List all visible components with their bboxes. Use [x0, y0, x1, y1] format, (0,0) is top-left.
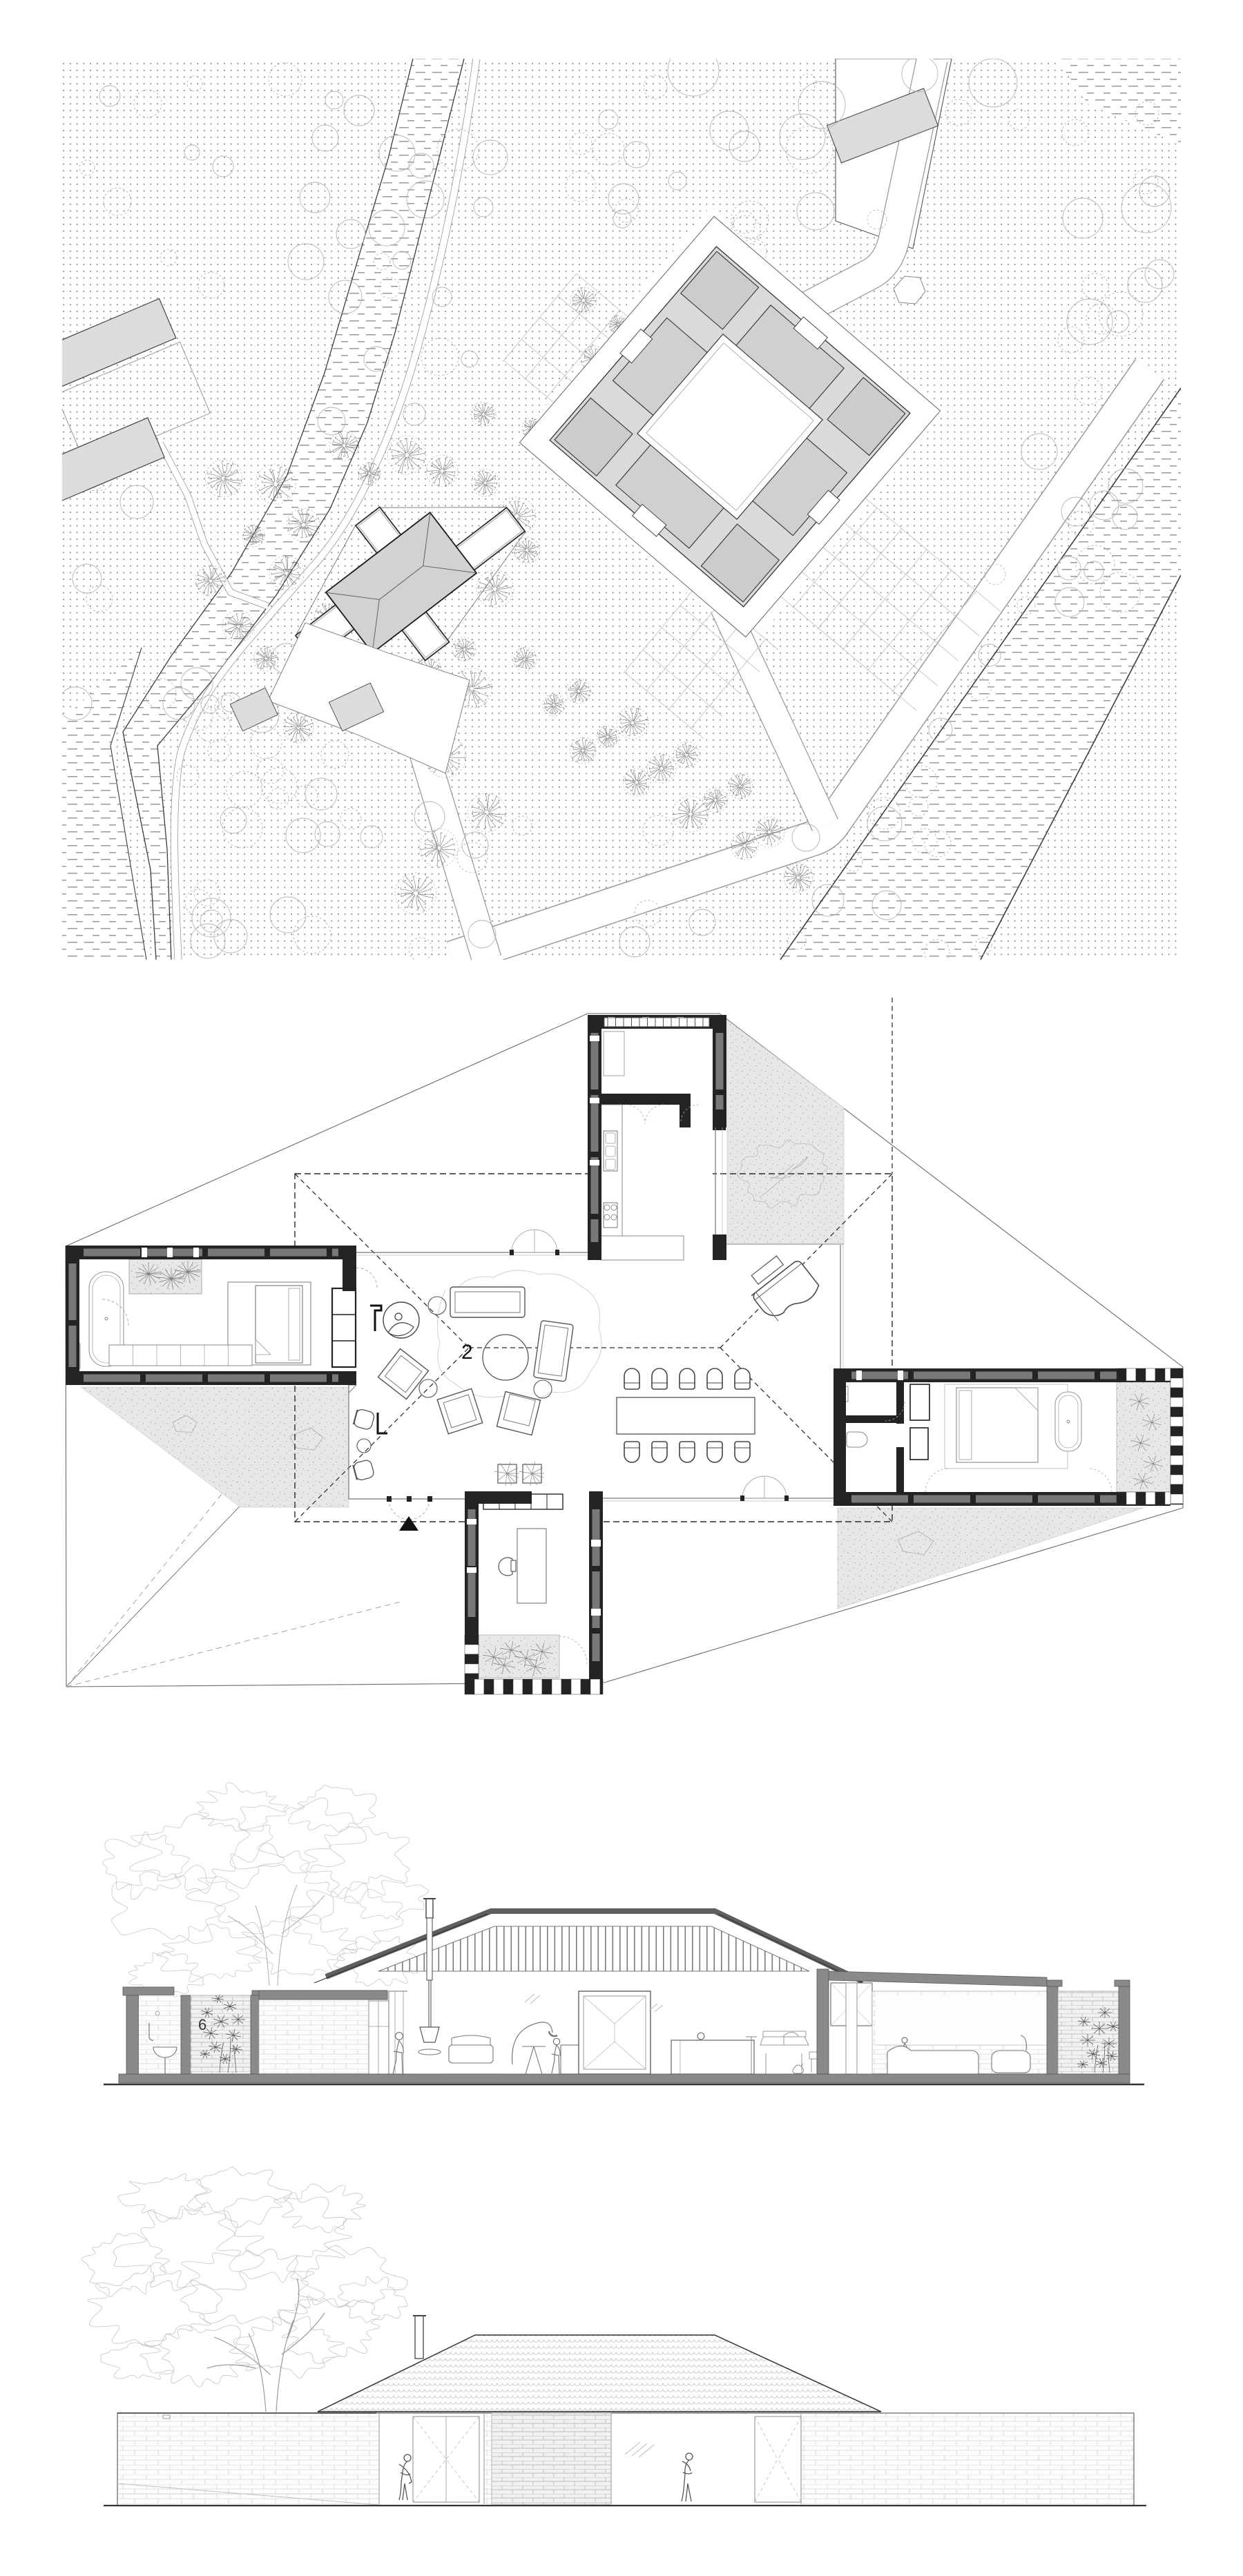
svg-text:6: 6 — [198, 2016, 206, 2033]
svg-text:2: 2 — [461, 1341, 473, 1364]
